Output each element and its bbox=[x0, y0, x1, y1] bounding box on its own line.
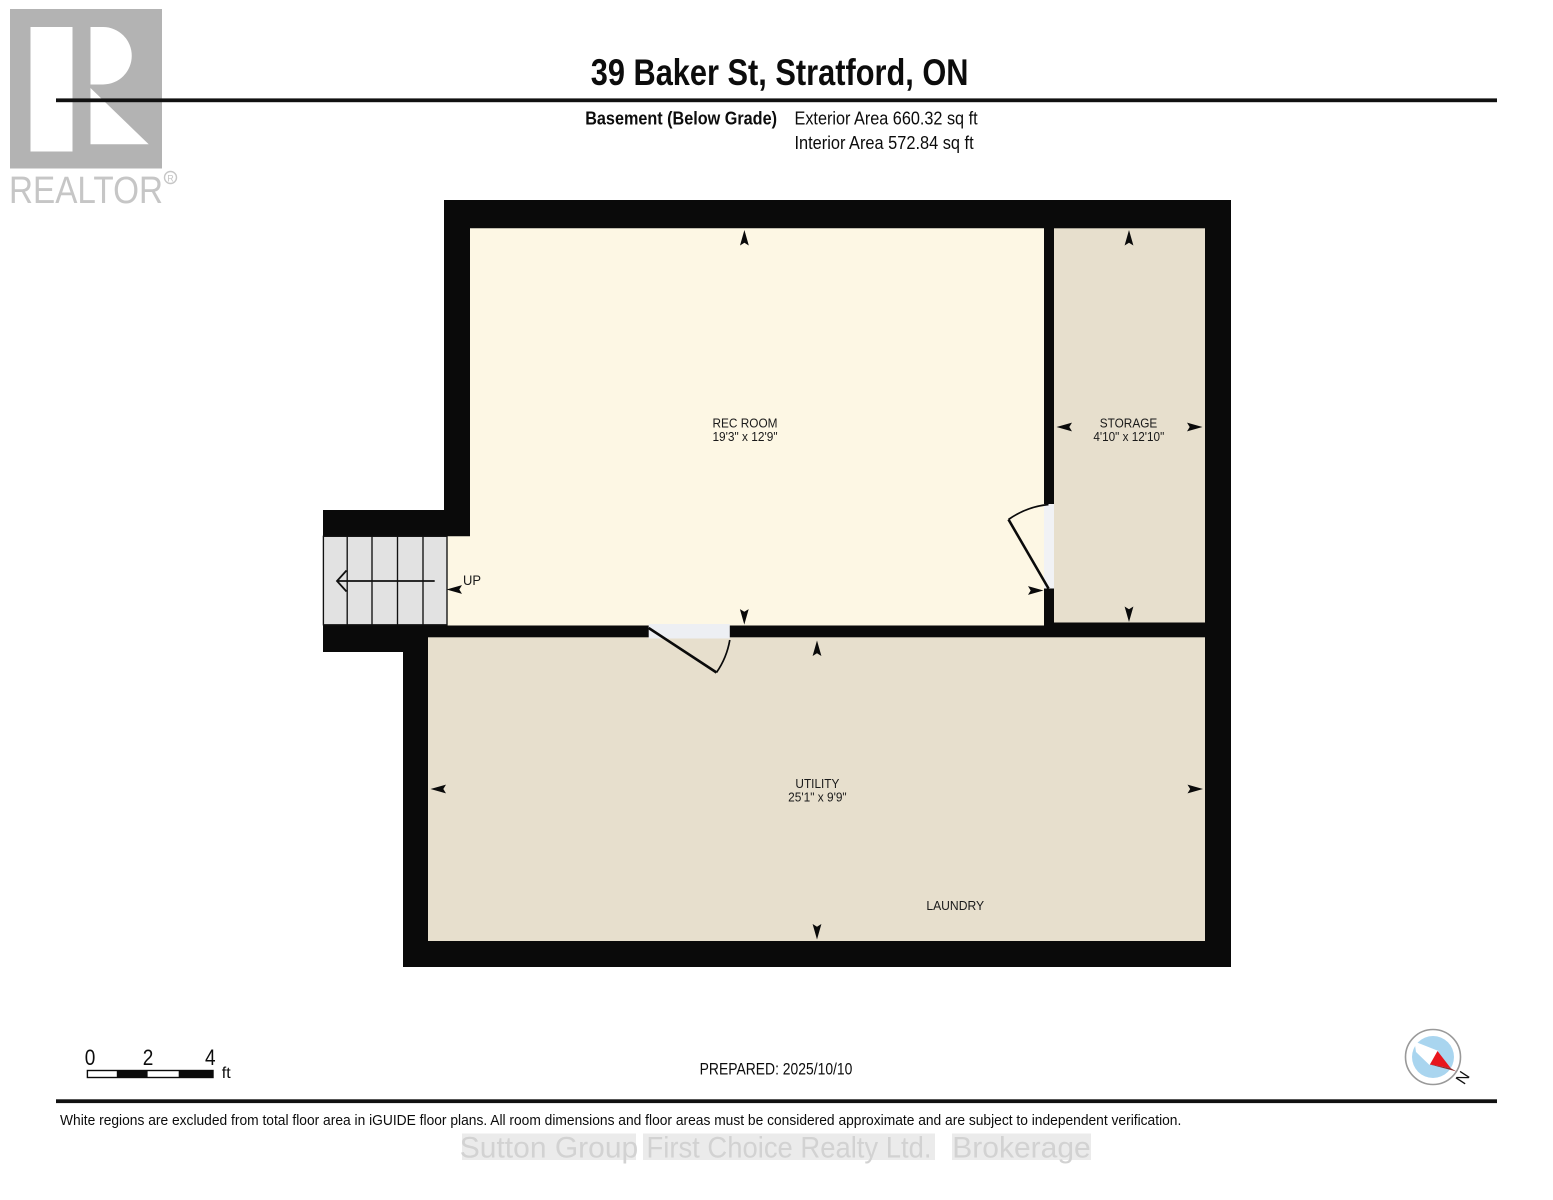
svg-text:39 Baker St, Stratford, ON: 39 Baker St, Stratford, ON bbox=[591, 53, 969, 94]
svg-text:4: 4 bbox=[205, 1046, 216, 1071]
svg-text:ft: ft bbox=[222, 1065, 231, 1082]
svg-text:R: R bbox=[167, 174, 174, 184]
svg-text:Sutton Group: Sutton Group bbox=[460, 1132, 638, 1165]
svg-text:White regions are excluded fro: White regions are excluded from total fl… bbox=[60, 1112, 1181, 1128]
svg-text:25'1" x 9'9": 25'1" x 9'9" bbox=[788, 790, 847, 805]
svg-text:PREPARED: 2025/10/10: PREPARED: 2025/10/10 bbox=[700, 1060, 853, 1079]
svg-text:Brokerage: Brokerage bbox=[952, 1132, 1090, 1165]
svg-text:First Choice Realty Ltd.: First Choice Realty Ltd. bbox=[647, 1132, 932, 1165]
svg-text:Interior Area 572.84 sq ft: Interior Area 572.84 sq ft bbox=[795, 132, 974, 153]
svg-text:4'10" x 12'10": 4'10" x 12'10" bbox=[1093, 429, 1164, 444]
svg-text:REALTOR: REALTOR bbox=[9, 170, 163, 212]
svg-text:0: 0 bbox=[85, 1046, 96, 1071]
svg-text:Basement (Below Grade): Basement (Below Grade) bbox=[585, 107, 777, 128]
svg-text:2: 2 bbox=[143, 1046, 154, 1071]
svg-text:LAUNDRY: LAUNDRY bbox=[926, 898, 984, 913]
svg-text:Exterior Area 660.32 sq ft: Exterior Area 660.32 sq ft bbox=[795, 107, 978, 128]
svg-text:UP: UP bbox=[463, 573, 481, 588]
svg-text:19'3" x 12'9": 19'3" x 12'9" bbox=[712, 429, 777, 444]
